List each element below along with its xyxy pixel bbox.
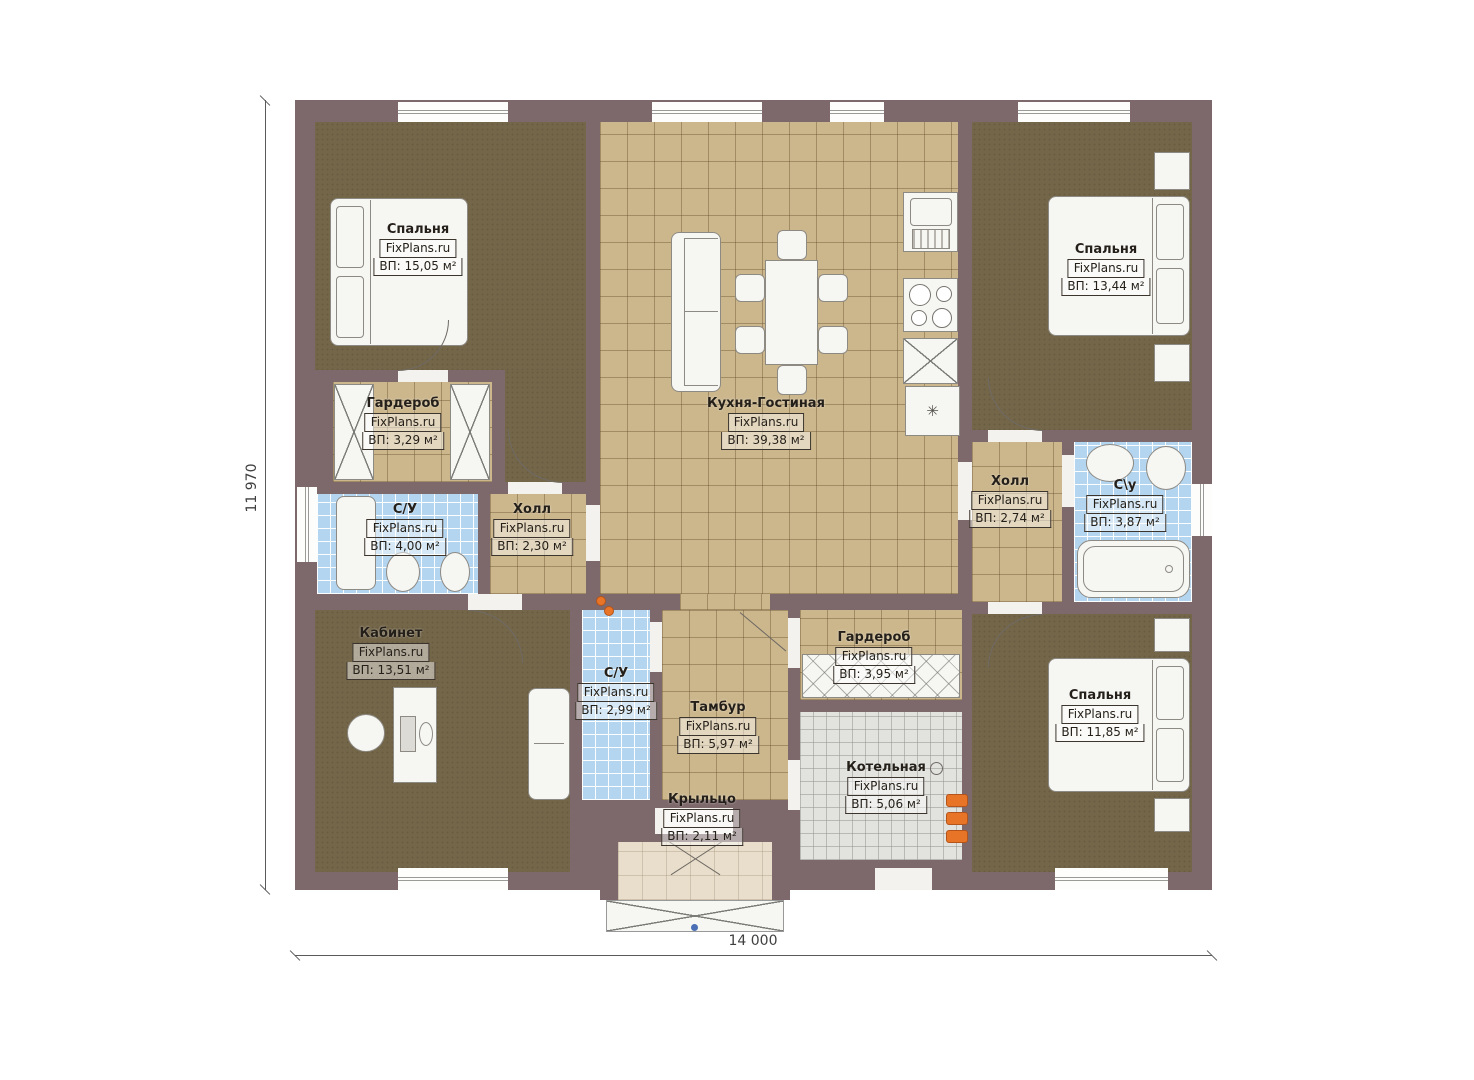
chair xyxy=(777,230,807,260)
porch-wall-left xyxy=(600,832,618,900)
room-name: Крыльцо xyxy=(668,792,736,807)
pillow xyxy=(336,206,364,268)
bathtub-right xyxy=(1077,540,1190,598)
door-office xyxy=(468,594,522,610)
room-name: Кабинет xyxy=(360,626,423,641)
window-left xyxy=(297,487,317,562)
boiler-exterior-door xyxy=(875,868,932,890)
chair xyxy=(818,326,848,354)
room-area: ВП: 3,29 м² xyxy=(362,432,444,450)
window-right xyxy=(1192,484,1212,536)
label-bathroom-left: С/У FixPlans.ru ВП: 4,00 м² xyxy=(364,502,446,556)
bed-fold-line xyxy=(1152,198,1153,334)
room-watermark: FixPlans.ru xyxy=(972,491,1049,510)
bed-fold-line xyxy=(1152,660,1153,790)
room-name: Спальня xyxy=(387,222,449,237)
room-area: ВП: 3,95 м² xyxy=(833,666,915,684)
room-area: ВП: 11,85 м² xyxy=(1055,724,1144,742)
stove xyxy=(903,278,958,332)
room-name: Холл xyxy=(991,474,1029,489)
porch-floor xyxy=(618,842,772,900)
label-tambour: Тамбур FixPlans.ru ВП: 5,97 м² xyxy=(677,700,759,754)
room-watermark: FixPlans.ru xyxy=(664,809,741,828)
room-area: ВП: 13,44 м² xyxy=(1061,278,1150,296)
boiler-equipment xyxy=(946,812,968,825)
room-area: ВП: 39,38 м² xyxy=(721,432,810,450)
porch-marker-dot xyxy=(691,924,698,931)
dimension-line-left xyxy=(265,100,266,890)
window-top-2 xyxy=(652,102,762,122)
sofa-cushion-line xyxy=(684,311,718,312)
window-top-3 xyxy=(830,102,884,122)
kitchen-sink-unit xyxy=(903,192,958,252)
room-name: Гардероб xyxy=(837,630,910,645)
room-name: Кухня-Гостиная xyxy=(707,396,825,411)
chair xyxy=(735,326,765,354)
office-sofa-line xyxy=(534,743,564,744)
room-name: С\у xyxy=(1114,478,1137,493)
boiler-equipment xyxy=(946,794,968,807)
dining-table xyxy=(765,260,818,365)
label-boiler: Котельная FixPlans.ru ВП: 5,06 м² xyxy=(845,760,927,814)
dimension-line-bottom xyxy=(295,955,1212,956)
office-sofa xyxy=(528,688,570,800)
room-name: Котельная xyxy=(846,760,926,775)
desk-chair-back xyxy=(419,722,433,746)
room-watermark: FixPlans.ru xyxy=(680,717,757,736)
tambour-kitchen-opening xyxy=(680,594,770,610)
label-wardrobe-bottom: Гардероб FixPlans.ru ВП: 3,95 м² xyxy=(833,630,915,684)
boiler-equipment xyxy=(946,830,968,843)
room-area: ВП: 4,00 м² xyxy=(364,538,446,556)
room-watermark: FixPlans.ru xyxy=(836,647,913,666)
bathtub-drain xyxy=(1165,565,1173,573)
pillow xyxy=(1156,728,1184,782)
label-hall-right: Холл FixPlans.ru ВП: 2,74 м² xyxy=(969,474,1051,528)
toilet-left xyxy=(386,552,420,592)
room-watermark: FixPlans.ru xyxy=(728,413,805,432)
desk xyxy=(393,687,437,783)
door-bathroom-bottom xyxy=(650,622,662,672)
room-watermark: FixPlans.ru xyxy=(1062,705,1139,724)
heating-valve xyxy=(596,596,606,606)
nightstand xyxy=(1154,618,1190,652)
label-bathroom-bottom: С/У FixPlans.ru ВП: 2,99 м² xyxy=(575,666,657,720)
door-wardrobe-bottom xyxy=(788,618,800,668)
window-top-4 xyxy=(1018,102,1130,122)
room-area: ВП: 2,30 м² xyxy=(491,538,573,556)
door-boiler xyxy=(788,760,800,810)
room-name: Спальня xyxy=(1069,688,1131,703)
room-watermark: FixPlans.ru xyxy=(365,413,442,432)
label-porch: Крыльцо FixPlans.ru ВП: 2,11 м² xyxy=(661,792,743,846)
room-area: ВП: 2,74 м² xyxy=(969,510,1051,528)
pillow xyxy=(1156,666,1184,720)
room-name: С/У xyxy=(393,502,417,517)
wardrobe-unit xyxy=(450,384,490,480)
pillow xyxy=(1156,204,1184,260)
pillow xyxy=(336,276,364,338)
room-name: Гардероб xyxy=(366,396,439,411)
room-area: ВП: 2,11 м² xyxy=(661,828,743,846)
label-bedroom-top-left: Спальня FixPlans.ru ВП: 15,05 м² xyxy=(373,222,462,276)
fridge: ✳ xyxy=(905,386,960,436)
burner xyxy=(932,308,952,328)
office-chair xyxy=(347,714,385,752)
door-bedroom-top-right xyxy=(988,430,1042,442)
room-area: ВП: 2,99 м² xyxy=(575,702,657,720)
porch-wall-right xyxy=(772,832,790,900)
room-watermark: FixPlans.ru xyxy=(1068,259,1145,278)
door-bathroom-right xyxy=(1062,455,1074,507)
sofa-cushions xyxy=(684,238,718,386)
room-watermark: FixPlans.ru xyxy=(848,777,925,796)
window-top-1 xyxy=(398,102,508,122)
door-wardrobe-left xyxy=(398,370,448,382)
chair xyxy=(777,365,807,395)
dimension-left-value: 11 970 xyxy=(244,448,260,528)
label-wardrobe-left: Гардероб FixPlans.ru ВП: 3,29 м² xyxy=(362,396,444,450)
room-watermark: FixPlans.ru xyxy=(367,519,444,538)
heating-valve xyxy=(604,606,614,616)
room-name: С/У xyxy=(604,666,628,681)
sink-drainboard xyxy=(912,229,950,249)
dimension-bottom-value: 14 000 xyxy=(703,933,803,949)
room-watermark: FixPlans.ru xyxy=(578,683,655,702)
label-office: Кабинет FixPlans.ru ВП: 13,51 м² xyxy=(346,626,435,680)
window-bottom-1 xyxy=(398,868,508,890)
door-hall-left-kitchen xyxy=(586,505,600,561)
nightstand xyxy=(1154,344,1190,382)
desk-monitor xyxy=(400,716,416,752)
room-name: Холл xyxy=(513,502,551,517)
room-watermark: FixPlans.ru xyxy=(380,239,457,258)
room-name: Спальня xyxy=(1075,242,1137,257)
room-area: ВП: 5,97 м² xyxy=(677,736,759,754)
room-watermark: FixPlans.ru xyxy=(494,519,571,538)
burner xyxy=(936,286,952,302)
label-bedroom-bottom-right: Спальня FixPlans.ru ВП: 11,85 м² xyxy=(1055,688,1144,742)
label-bathroom-right: С\у FixPlans.ru ВП: 3,87 м² xyxy=(1084,478,1166,532)
room-area: ВП: 13,51 м² xyxy=(346,662,435,680)
nightstand xyxy=(1154,152,1190,190)
room-watermark: FixPlans.ru xyxy=(1087,495,1164,514)
label-bedroom-top-right: Спальня FixPlans.ru ВП: 13,44 м² xyxy=(1061,242,1150,296)
burner xyxy=(909,284,931,306)
label-kitchen-living: Кухня-Гостиная FixPlans.ru ВП: 39,38 м² xyxy=(707,396,825,450)
door-bedroom-top-left xyxy=(508,482,562,494)
nightstand xyxy=(1154,798,1190,832)
kitchen-cabinet xyxy=(903,338,958,384)
label-hall-left: Холл FixPlans.ru ВП: 2,30 м² xyxy=(491,502,573,556)
room-area: ВП: 15,05 м² xyxy=(373,258,462,276)
window-bottom-2 xyxy=(1055,868,1168,890)
room-watermark: FixPlans.ru xyxy=(353,643,430,662)
room-area: ВП: 5,06 м² xyxy=(845,796,927,814)
room-area: ВП: 3,87 м² xyxy=(1084,514,1166,532)
room-name: Тамбур xyxy=(690,700,745,715)
fridge-snowflake-icon: ✳ xyxy=(926,402,939,420)
bed-fold-line xyxy=(370,200,371,344)
washbasin-left xyxy=(440,552,470,592)
sink-bowl xyxy=(910,198,952,226)
chair xyxy=(818,274,848,302)
door-bedroom-bottom-right xyxy=(988,602,1042,614)
boiler-unit-icon xyxy=(930,762,943,775)
chair xyxy=(735,274,765,302)
burner xyxy=(911,310,927,326)
washbasin-right xyxy=(1086,444,1134,482)
floor-plan: ✳ Спальня FixPlans.ru ВП: 15,05 м² Гарде xyxy=(0,0,1474,1080)
pillow xyxy=(1156,268,1184,324)
